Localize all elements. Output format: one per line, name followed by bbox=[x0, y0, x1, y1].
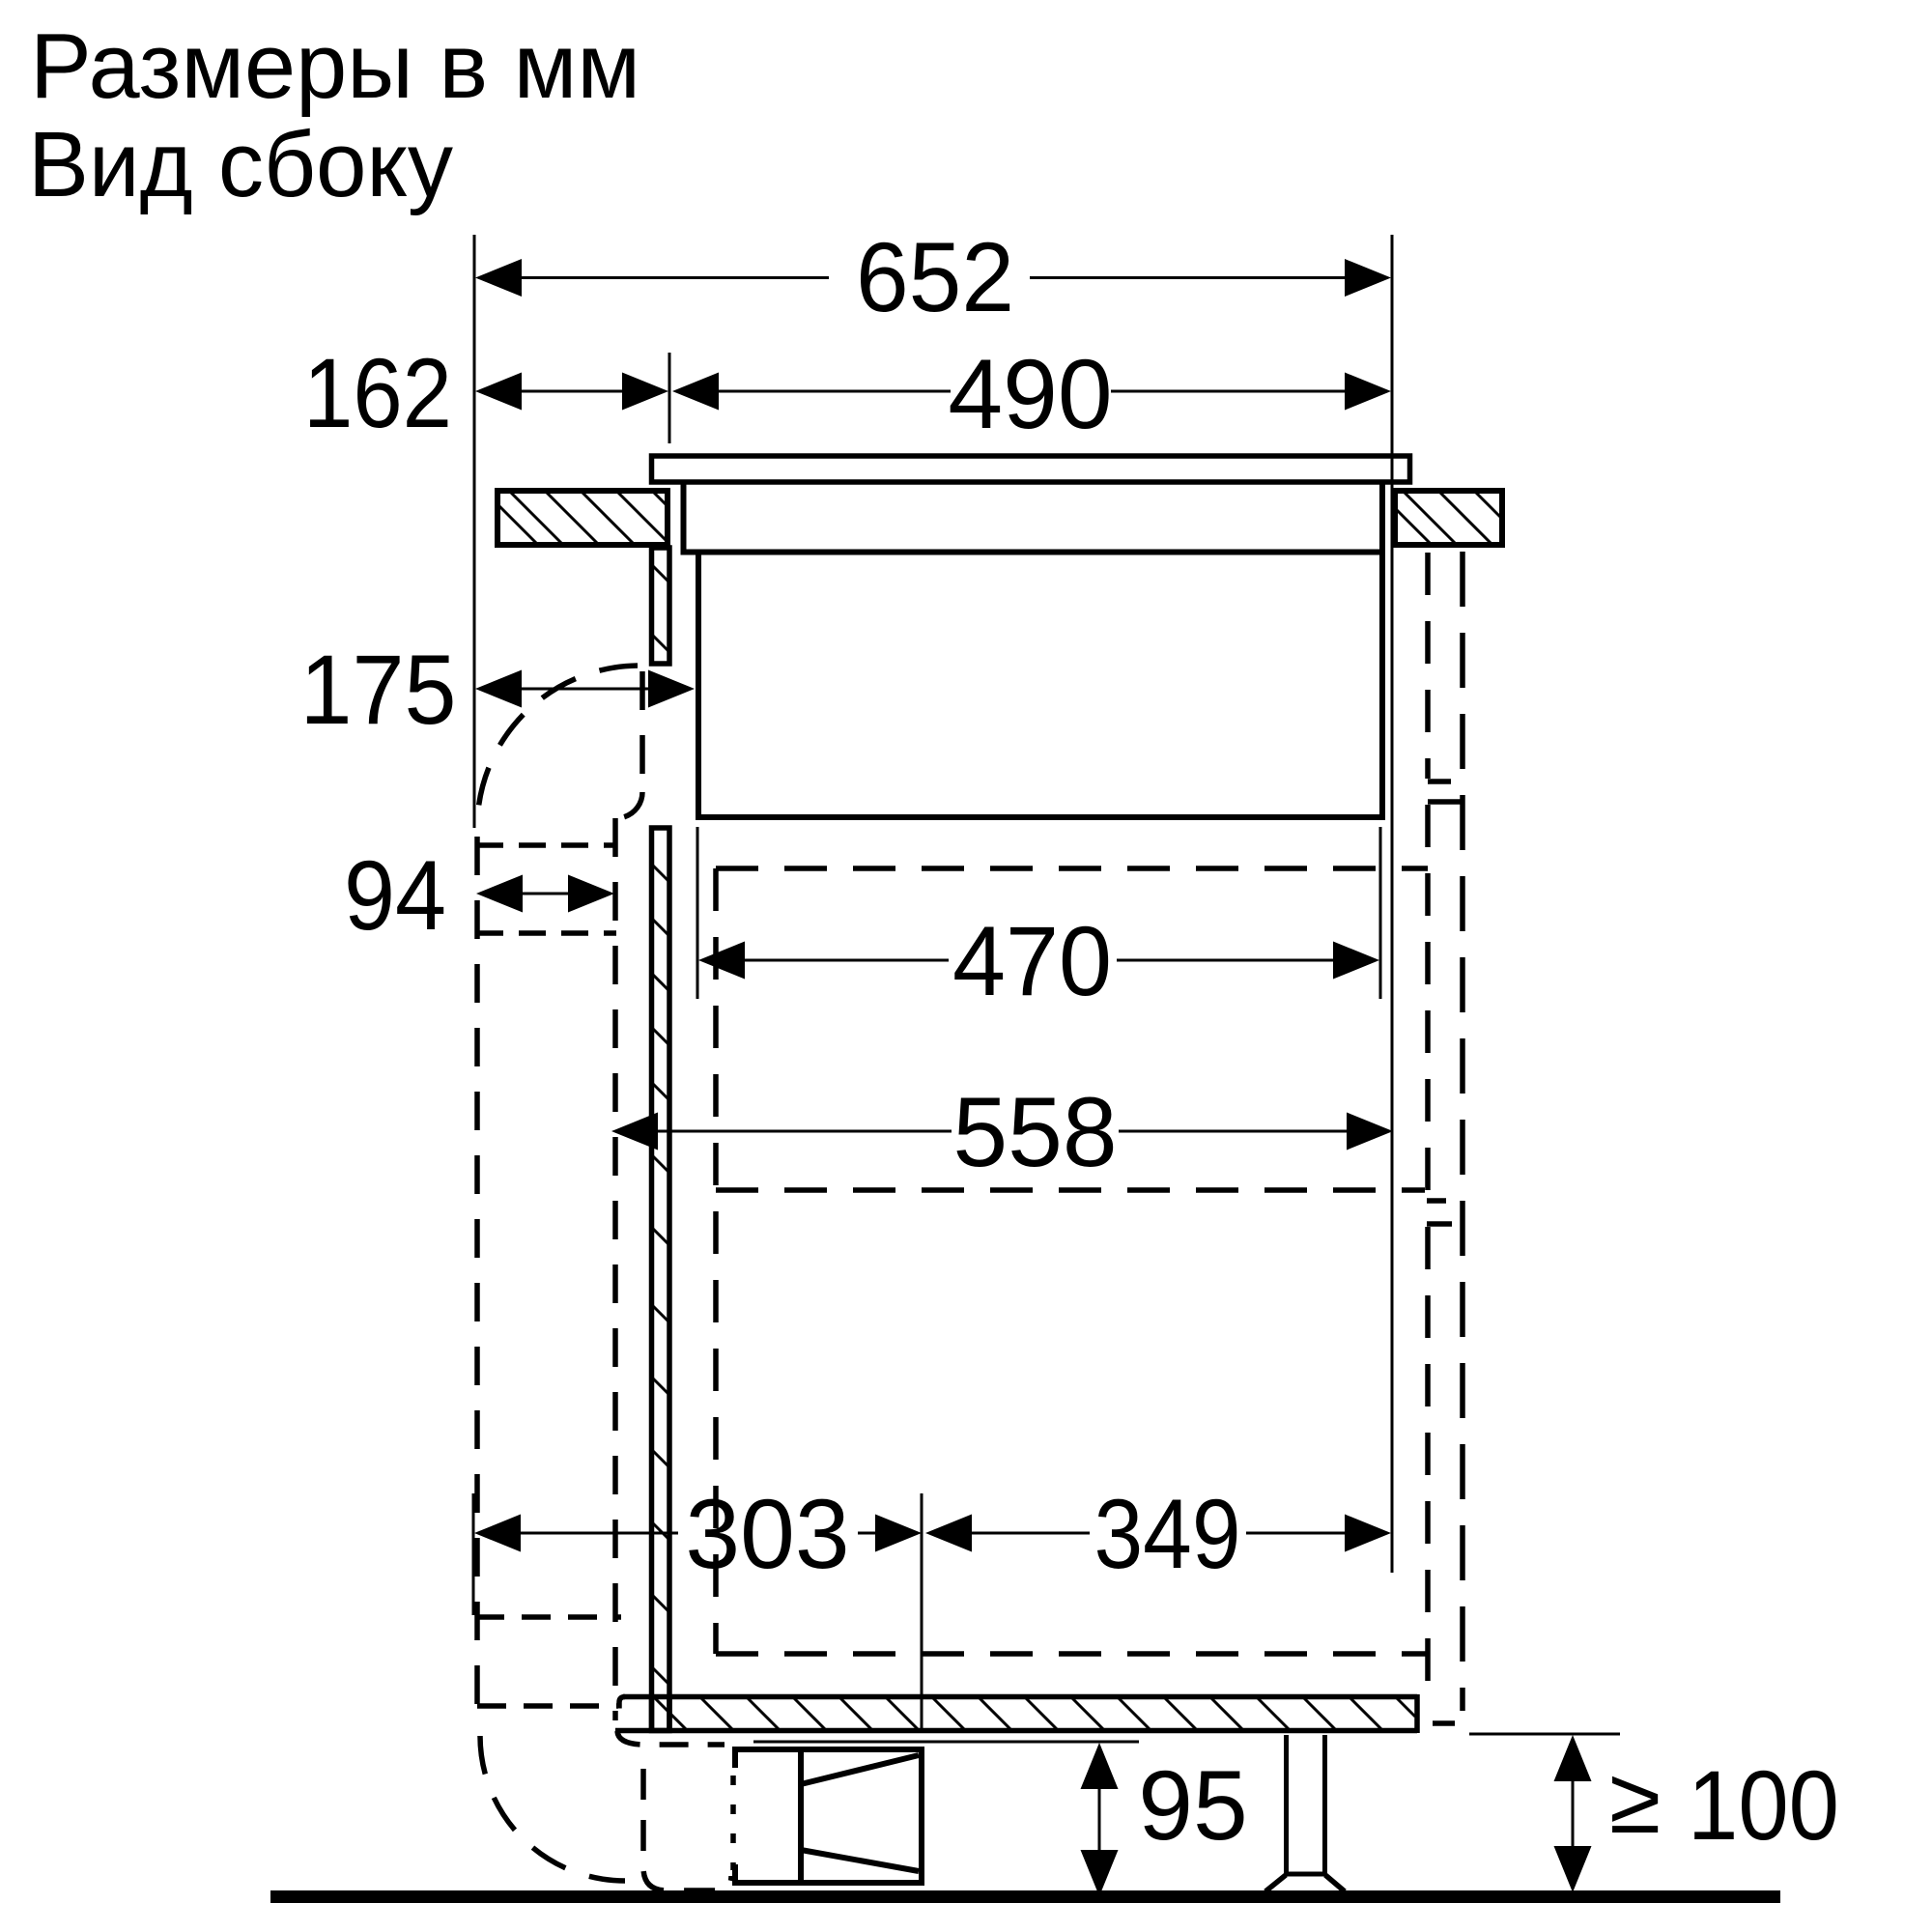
svg-text:≥: ≥ bbox=[1609, 1747, 1661, 1853]
svg-text:94: 94 bbox=[344, 840, 446, 951]
svg-text:558: 558 bbox=[952, 1077, 1117, 1187]
svg-text:349: 349 bbox=[1094, 1479, 1241, 1589]
svg-text:100: 100 bbox=[1688, 1750, 1839, 1861]
svg-text:175: 175 bbox=[300, 635, 457, 745]
svg-text:Вид сбоку: Вид сбоку bbox=[28, 113, 453, 216]
svg-text:303: 303 bbox=[685, 1479, 849, 1589]
svg-text:162: 162 bbox=[303, 338, 452, 448]
svg-text:470: 470 bbox=[952, 906, 1112, 1016]
svg-text:Размеры в мм: Размеры в мм bbox=[30, 14, 640, 118]
svg-text:95: 95 bbox=[1138, 1750, 1247, 1861]
svg-text:652: 652 bbox=[856, 222, 1014, 332]
svg-text:490: 490 bbox=[948, 339, 1112, 449]
